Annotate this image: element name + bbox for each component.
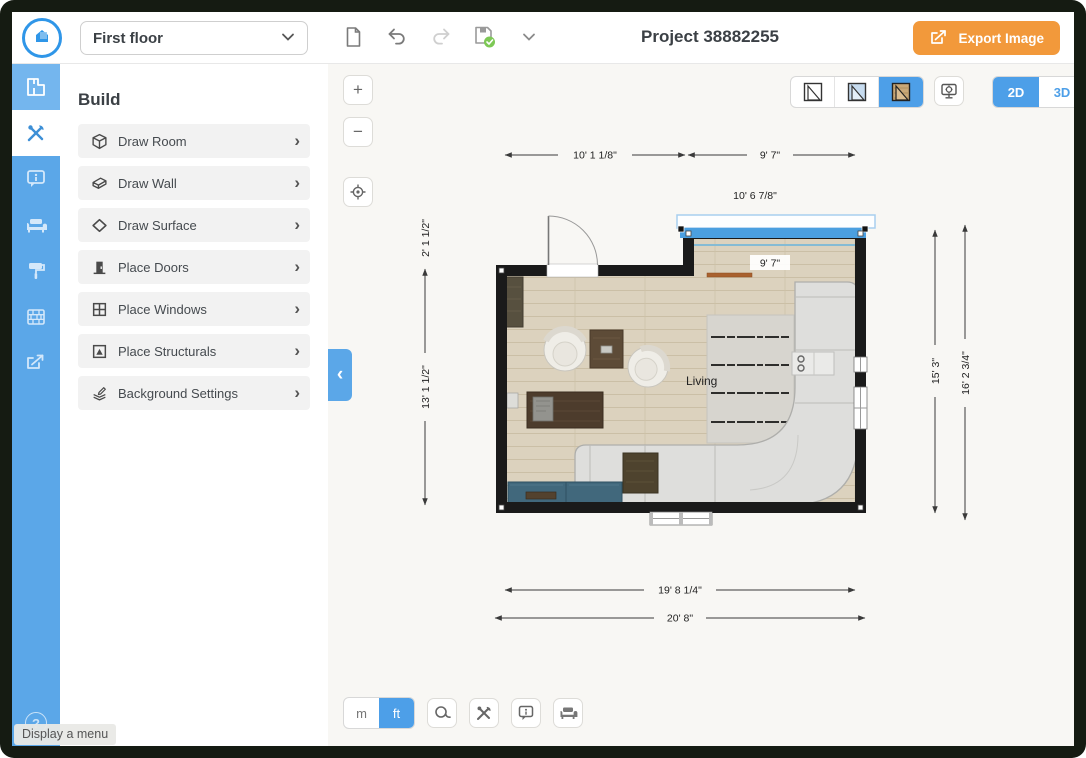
unit-imperial-button[interactable]: ft — [379, 698, 414, 728]
app-logo[interactable] — [22, 18, 62, 58]
new-document-icon — [343, 26, 364, 48]
build-item-label: Background Settings — [118, 386, 294, 401]
dim-right-inner: 15' 3" — [930, 358, 942, 384]
sofa-icon — [24, 214, 48, 236]
render-style-tinted-button[interactable] — [835, 77, 879, 107]
dim-top-left: 10' 1 1/8" — [573, 150, 617, 162]
draw-room-icon — [88, 133, 110, 150]
sidebar-item-build-tools[interactable] — [12, 110, 60, 156]
door[interactable] — [547, 216, 598, 277]
dim-bottom-outer: 20' 8" — [667, 613, 693, 625]
redo-icon — [430, 27, 452, 47]
right-window-lower[interactable] — [854, 387, 867, 429]
chevron-right-icon: › — [294, 384, 300, 403]
render-style-textured-icon — [890, 81, 912, 103]
build-item-draw-room[interactable]: Draw Room › — [78, 124, 310, 158]
export-image-label: Export Image — [958, 31, 1044, 46]
background-settings-icon — [88, 385, 110, 402]
zoom-out-button[interactable]: − — [343, 117, 373, 147]
chevron-right-icon: › — [294, 216, 300, 235]
chevron-right-icon: › — [294, 174, 300, 193]
side-unit[interactable] — [792, 352, 834, 375]
build-tools-button[interactable] — [469, 698, 499, 728]
wall-shelf-unit[interactable] — [505, 277, 523, 327]
wall-shelf[interactable] — [707, 273, 752, 277]
floor-selector-value: First floor — [93, 30, 281, 47]
build-item-place-doors[interactable]: Place Doors › — [78, 250, 310, 284]
document-toolbar — [338, 22, 544, 52]
render-style-group — [790, 76, 924, 108]
render-style-textured-button[interactable] — [879, 77, 923, 107]
build-item-background-settings[interactable]: Background Settings › — [78, 376, 310, 410]
chevron-left-icon: ‹ — [337, 364, 343, 386]
sidebar-item-materials[interactable] — [12, 294, 60, 340]
view-style-controls: 2D 3D — [790, 76, 1074, 108]
build-item-label: Place Windows — [118, 302, 294, 317]
center-view-button[interactable] — [343, 177, 373, 207]
display-settings-button[interactable] — [934, 76, 964, 106]
build-item-label: Place Structurals — [118, 344, 294, 359]
bricks-icon — [25, 306, 47, 328]
armchair[interactable] — [544, 329, 586, 371]
build-item-label: Place Doors — [118, 260, 294, 275]
share-arrow-icon — [25, 353, 47, 373]
render-style-tinted-icon — [846, 81, 868, 103]
side-table[interactable] — [590, 330, 623, 368]
crosshair-icon — [349, 183, 367, 201]
new-document-button[interactable] — [338, 22, 368, 52]
selected-window[interactable] — [677, 215, 875, 238]
tools-icon — [475, 704, 493, 722]
annotation-button[interactable] — [511, 698, 541, 728]
build-panel-title: Build — [78, 90, 328, 110]
build-item-label: Draw Surface — [118, 218, 294, 233]
small-cabinet[interactable] — [623, 453, 658, 493]
unit-toggle-group: m ft — [343, 697, 415, 729]
build-item-place-structurals[interactable]: Place Structurals › — [78, 334, 310, 368]
dim-left-step: 2' 1 1/2" — [420, 219, 432, 257]
sidebar-item-floorplan[interactable] — [12, 64, 60, 110]
chevron-right-icon: › — [294, 258, 300, 277]
comment-info-icon — [25, 168, 47, 190]
dim-top-right: 9' 7" — [760, 150, 781, 162]
place-doors-icon — [88, 259, 110, 276]
undo-button[interactable] — [382, 22, 412, 52]
rug[interactable] — [707, 315, 794, 443]
floorplanner-logo-icon — [31, 25, 53, 52]
floorplanner-app: First floor — [12, 12, 1074, 746]
desk[interactable] — [527, 392, 603, 428]
sidebar-item-furniture[interactable] — [12, 202, 60, 248]
floorplan-drawing[interactable]: Living 9' 7" 10' 6 7/8" 10' 1 — [400, 135, 1000, 645]
tools-icon — [25, 122, 47, 144]
build-item-draw-surface[interactable]: Draw Surface › — [78, 208, 310, 242]
chevron-right-icon: › — [294, 132, 300, 151]
save-icon — [472, 24, 498, 50]
floor-selector-dropdown[interactable]: First floor — [80, 21, 308, 55]
sidebar-item-export[interactable] — [12, 340, 60, 386]
unit-metric-button[interactable]: m — [344, 698, 379, 728]
chevron-right-icon: › — [294, 300, 300, 319]
app-window: First floor — [0, 0, 1086, 758]
chevron-down-icon — [522, 32, 536, 42]
furniture-button[interactable] — [553, 698, 583, 728]
export-image-button[interactable]: Export Image — [913, 21, 1060, 55]
display-menu-tooltip: Display a menu — [14, 724, 116, 745]
build-item-draw-wall[interactable]: Draw Wall › — [78, 166, 310, 200]
floorplan-icon — [25, 76, 47, 98]
paint-roller-icon — [25, 260, 47, 282]
redo-button[interactable] — [426, 22, 456, 52]
collapse-panel-tab[interactable]: ‹ — [328, 349, 352, 401]
build-panel: Build Draw Room › Draw Wall › Draw Surfa… — [60, 64, 328, 746]
measure-tool-button[interactable] — [427, 698, 457, 728]
top-bar: First floor — [12, 12, 1074, 64]
draw-surface-icon — [88, 217, 110, 234]
window-width-label: 10' 6 7/8" — [733, 190, 777, 202]
chevron-down-icon — [281, 29, 295, 47]
chevron-right-icon: › — [294, 342, 300, 361]
dim-right-outer: 16' 2 3/4" — [960, 351, 972, 395]
drawing-canvas[interactable]: + − 2D 3D — [328, 64, 1074, 746]
render-style-outline-button[interactable] — [791, 77, 835, 107]
dim-bottom-inner: 19' 8 1/4" — [658, 585, 702, 597]
main-sidebar: ? — [12, 64, 60, 746]
dimension-toggle-group: 2D 3D — [992, 76, 1074, 108]
room-label[interactable]: Living — [686, 374, 717, 388]
display-settings-icon — [939, 81, 959, 101]
save-button[interactable] — [470, 22, 500, 52]
interior-width-label: 9' 7" — [750, 255, 790, 270]
save-options-dropdown[interactable] — [514, 22, 544, 52]
comment-info-icon — [517, 704, 535, 722]
place-structurals-icon — [88, 343, 110, 360]
project-title: Project 38882255 — [560, 27, 860, 47]
build-item-label: Draw Room — [118, 134, 294, 149]
dim-left-height: 13' 1 1/2" — [420, 365, 432, 409]
build-item-place-windows[interactable]: Place Windows › — [78, 292, 310, 326]
undo-icon — [386, 27, 408, 47]
sidebar-item-annotations[interactable] — [12, 156, 60, 202]
place-windows-icon — [88, 301, 110, 318]
export-image-icon — [929, 29, 949, 47]
zoom-controls: + − — [343, 75, 373, 219]
zoom-in-button[interactable]: + — [343, 75, 373, 105]
tape-measure-icon — [433, 704, 452, 722]
render-style-outline-icon — [802, 81, 824, 103]
sofa-icon — [558, 704, 578, 722]
build-item-label: Draw Wall — [118, 176, 294, 191]
right-window-upper[interactable] — [854, 357, 867, 372]
sidebar-item-finishes[interactable] — [12, 248, 60, 294]
canvas-bottom-toolbar: m ft — [343, 697, 583, 729]
bottom-window[interactable] — [650, 512, 712, 525]
view-2d-button[interactable]: 2D — [993, 77, 1039, 107]
view-3d-button[interactable]: 3D — [1039, 77, 1074, 107]
svg-text:9' 7": 9' 7" — [760, 258, 781, 270]
wall-switch[interactable] — [507, 393, 518, 408]
draw-wall-icon — [88, 175, 110, 192]
